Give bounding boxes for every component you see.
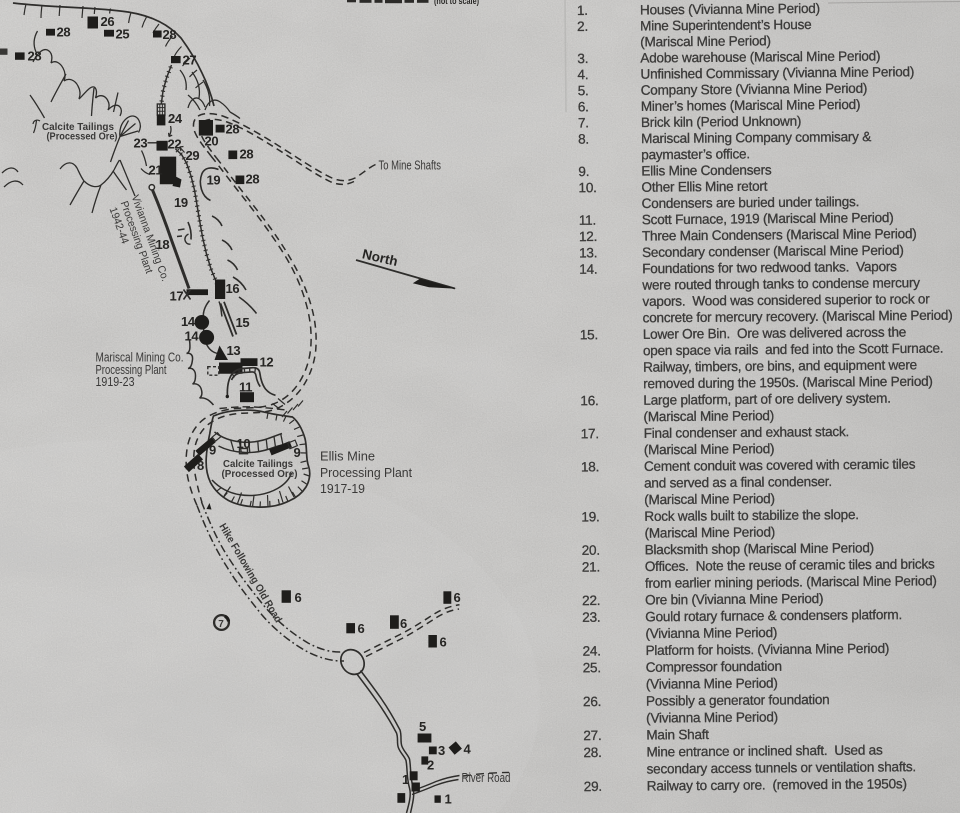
svg-text:and served as a final condense: and served as a final condenser. (644, 474, 832, 491)
svg-text:24.: 24. (582, 643, 600, 658)
svg-text:Mine entrance or inclined shaf: Mine entrance or inclined shaft. Used as (646, 742, 883, 759)
svg-text:14: 14 (185, 329, 200, 344)
svg-text:Brick kiln (Period Unknown): Brick kiln (Period Unknown) (641, 114, 801, 130)
svg-text:3.: 3. (577, 51, 588, 66)
svg-text:Other Ellis Mine retort: Other Ellis Mine retort (641, 179, 767, 195)
svg-text:7.: 7. (578, 115, 589, 130)
svg-text:Unfinished Commissary (Viviann: Unfinished Commissary (Vivianna Mine Per… (640, 64, 914, 81)
svg-text:Final condenser and exhaust st: Final condenser and exhaust stack. (644, 424, 849, 441)
svg-text:3: 3 (438, 743, 445, 758)
svg-text:(Mariscal Mine Period): (Mariscal Mine Period) (644, 441, 775, 457)
svg-text:25: 25 (116, 27, 130, 42)
svg-text:6: 6 (295, 590, 302, 605)
svg-text:(Vivianna Mine Period): (Vivianna Mine Period) (646, 709, 778, 725)
svg-text:1.: 1. (577, 3, 588, 18)
svg-text:13.: 13. (579, 245, 597, 260)
svg-text:6: 6 (454, 590, 461, 605)
svg-text:6: 6 (400, 616, 407, 631)
svg-text:Processing Plant: Processing Plant (320, 465, 412, 480)
svg-text:24: 24 (168, 111, 183, 126)
svg-text:Scott Furnace, 1919 (Mariscal: Scott Furnace, 1919 (Mariscal Mine Perio… (642, 210, 894, 227)
svg-text:Cement conduit was covered wit: Cement conduit was covered with ceramic … (644, 457, 916, 474)
svg-text:1919-23: 1919-23 (96, 375, 135, 389)
svg-text:(Vivianna Mine Period): (Vivianna Mine Period) (646, 676, 778, 692)
svg-text:open space via rails and fed: open space via rails and fed into the Sc… (643, 341, 943, 359)
svg-text:17: 17 (170, 289, 184, 304)
svg-text:14: 14 (181, 314, 196, 329)
svg-text:20.: 20. (582, 543, 600, 558)
svg-text:concrete for mercury recovery.: concrete for mercury recovery. (Mariscal… (643, 308, 953, 326)
svg-text:(Processed Ore): (Processed Ore) (47, 131, 118, 143)
svg-text:16.: 16. (580, 393, 598, 408)
svg-text:To Mine Shafts: To Mine Shafts (379, 158, 442, 173)
svg-text:20: 20 (205, 134, 219, 149)
svg-text:Gould rotary furnace & condens: Gould rotary furnace & condensers platfo… (645, 607, 902, 624)
svg-text:6.: 6. (578, 99, 589, 114)
svg-text:Mine Superintendent’s House: Mine Superintendent’s House (640, 17, 811, 33)
svg-text:(not to scale): (not to scale) (434, 0, 479, 7)
svg-text:18.: 18. (581, 459, 599, 474)
svg-text:25.: 25. (583, 660, 601, 675)
svg-text:1917-19: 1917-19 (320, 481, 365, 496)
svg-text:8.: 8. (578, 132, 589, 147)
svg-text:Houses (Vivianna Mine Period): Houses (Vivianna Mine Period) (640, 1, 820, 18)
svg-text:13: 13 (227, 343, 241, 358)
svg-text:2.: 2. (577, 19, 588, 34)
svg-text:Company Store (Vivianna Mine P: Company Store (Vivianna Mine Period) (641, 81, 868, 98)
svg-text:12.: 12. (579, 229, 597, 244)
svg-text:secondary access tunnels or ve: secondary access tunnels or ventilation … (647, 759, 916, 776)
svg-text:Rock walls built to stabilize: Rock walls built to stabilize the slope. (644, 507, 859, 524)
svg-text:Foundations for two redwood ta: Foundations for two redwood tanks. Vapor… (642, 259, 897, 276)
svg-text:Main Shaft: Main Shaft (646, 727, 709, 743)
svg-text:(Mariscal Mine Period): (Mariscal Mine Period) (644, 491, 775, 507)
svg-text:15: 15 (236, 315, 250, 330)
svg-text:8: 8 (197, 458, 204, 473)
svg-text:Large platform, part of ore de: Large platform, part of ore delivery sys… (643, 391, 891, 408)
svg-text:17.: 17. (581, 426, 599, 441)
svg-text:Secondary condenser (Mariscal: Secondary condenser (Mariscal Mine Perio… (642, 243, 904, 260)
svg-text:23.: 23. (582, 610, 600, 625)
svg-text:6: 6 (440, 635, 447, 650)
svg-text:4: 4 (464, 742, 472, 757)
svg-text:21.: 21. (582, 559, 600, 574)
svg-text:removed during the 1950s. (Mar: removed during the 1950s. (Mariscal Mine… (643, 374, 933, 392)
svg-text:9.: 9. (578, 164, 589, 179)
svg-text:16: 16 (226, 281, 240, 296)
svg-text:7: 7 (218, 619, 224, 630)
svg-text:vapors. Wood was considered s: vapors. Wood was considered superior to … (642, 291, 930, 309)
svg-text:Blacksmith shop (Mariscal Mine: Blacksmith shop (Mariscal Mine Period) (645, 540, 874, 557)
svg-text:27.: 27. (583, 728, 601, 743)
svg-text:22: 22 (168, 137, 182, 152)
svg-text:Railway, timbers, ore bins, an: Railway, timbers, ore bins, and equipmen… (643, 357, 917, 374)
svg-text:22.: 22. (582, 593, 600, 608)
svg-text:(Mariscal Mine Period): (Mariscal Mine Period) (644, 524, 775, 540)
svg-text:5: 5 (419, 719, 426, 734)
svg-text:(Vivianna Mine Period): (Vivianna Mine Period) (645, 625, 777, 641)
svg-text:6: 6 (358, 621, 365, 636)
svg-text:10.: 10. (578, 180, 596, 195)
svg-text:(Processed Ore): (Processed Ore) (222, 468, 298, 480)
svg-text:10: 10 (237, 436, 251, 451)
svg-text:9: 9 (209, 443, 216, 458)
svg-text:28: 28 (163, 27, 177, 42)
svg-text:28.: 28. (583, 745, 601, 760)
svg-text:Ore bin (Vivianna Mine Period): Ore bin (Vivianna Mine Period) (645, 591, 823, 608)
svg-text:11.: 11. (579, 213, 596, 228)
svg-text:2: 2 (427, 758, 434, 773)
svg-text:paymaster’s office.: paymaster’s office. (641, 146, 750, 162)
svg-text:1: 1 (402, 772, 409, 787)
svg-text:15.: 15. (580, 327, 598, 342)
svg-text:(Mariscal Mine Period): (Mariscal Mine Period) (640, 33, 771, 49)
svg-text:Condensers are buried under ta: Condensers are buried under tailings. (642, 194, 860, 211)
svg-text:5.: 5. (578, 83, 589, 98)
svg-text:1: 1 (445, 792, 452, 807)
svg-text:Lower Ore Bin. Ore was delive: Lower Ore Bin. Ore was delivered across … (643, 325, 906, 342)
svg-text:(Mariscal Mine Period): (Mariscal Mine Period) (643, 408, 774, 424)
svg-text:Mariscal Mining Company commis: Mariscal Mining Company commisary & (641, 129, 871, 146)
svg-text:28: 28 (28, 49, 42, 64)
svg-text:28: 28 (226, 122, 240, 137)
svg-text:Adobe warehouse (Mariscal Mine: Adobe warehouse (Mariscal Mine Period) (640, 48, 880, 65)
svg-text:Ellis Mine: Ellis Mine (320, 449, 375, 464)
svg-text:28: 28 (246, 172, 260, 187)
svg-text:Possibly a generator foundatio: Possibly a generator foundation (646, 692, 830, 709)
svg-text:Three Main Condensers (Marisca: Three Main Condensers (Mariscal Mine Per… (642, 226, 917, 243)
svg-text:Compressor foundation: Compressor foundation (646, 659, 782, 675)
svg-text:23: 23 (134, 136, 148, 151)
svg-text:Railway to carry ore. (remove: Railway to carry ore. (removed in the 19… (647, 776, 907, 793)
svg-text:9: 9 (294, 445, 301, 460)
svg-text:were routed through tanks to c: were routed through tanks to condense me… (641, 275, 920, 292)
svg-text:29: 29 (186, 148, 200, 163)
svg-text:14.: 14. (579, 262, 597, 277)
svg-text:19: 19 (174, 195, 188, 210)
svg-text:12: 12 (260, 355, 274, 370)
svg-text:27: 27 (183, 53, 197, 68)
svg-text:28: 28 (57, 25, 71, 40)
svg-text:from earlier mining periods. (: from earlier mining periods. (Mariscal M… (645, 573, 937, 591)
svg-text:Miner’s homes (Mariscal Mine P: Miner’s homes (Mariscal Mine Period) (641, 97, 861, 114)
svg-text:26.: 26. (583, 694, 601, 709)
svg-text:19.: 19. (581, 509, 599, 524)
svg-text:11: 11 (239, 380, 252, 395)
svg-text:4.: 4. (577, 67, 588, 82)
svg-text:28: 28 (240, 147, 254, 162)
svg-text:19: 19 (207, 173, 221, 188)
svg-text:29.: 29. (584, 779, 602, 794)
svg-text:Ellis Mine Condensers: Ellis Mine Condensers (641, 162, 772, 178)
svg-text:Offices. Note the reuse of ce: Offices. Note the reuse of ceramic tiles… (645, 556, 935, 574)
svg-text:Platform for hoists. (Vivianna: Platform for hoists. (Vivianna Mine Peri… (645, 641, 889, 658)
svg-text:River Road: River Road (462, 770, 511, 785)
svg-text:26: 26 (101, 14, 115, 29)
svg-text:21: 21 (149, 163, 163, 178)
